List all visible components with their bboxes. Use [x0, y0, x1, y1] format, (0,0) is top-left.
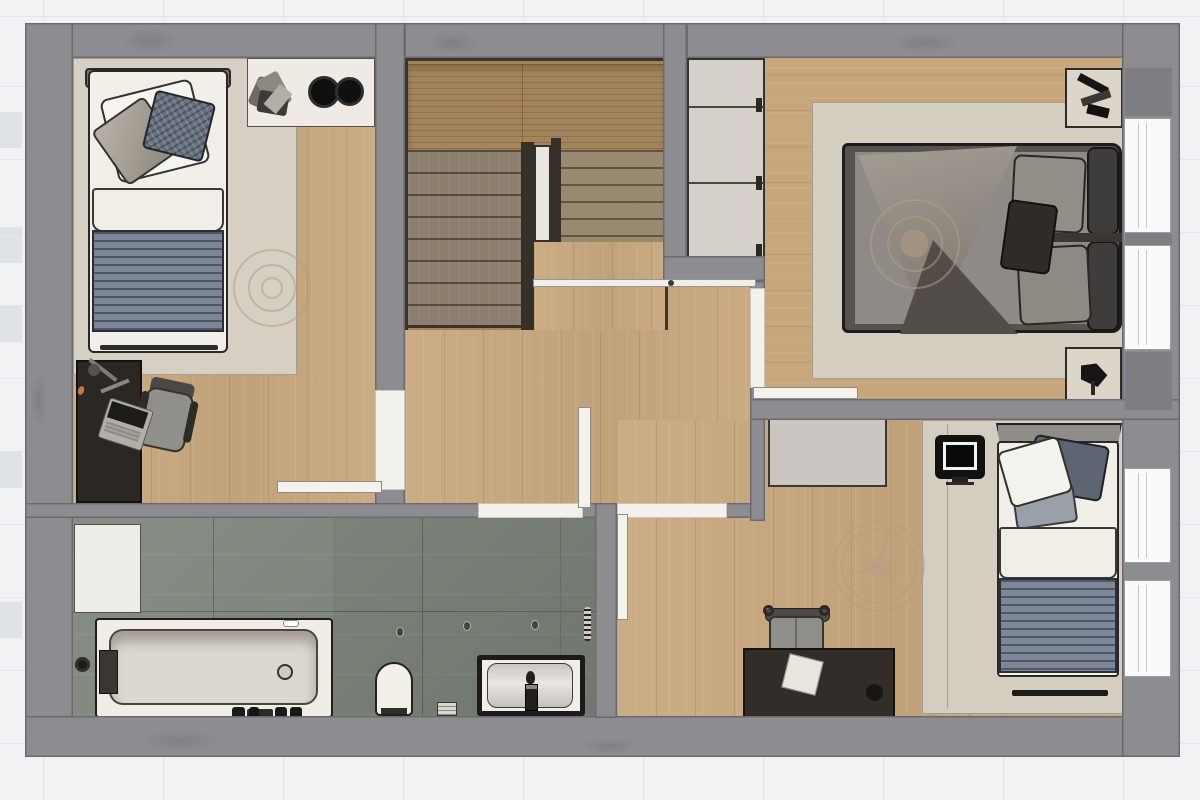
window [1124, 580, 1171, 677]
tub-knob [75, 657, 90, 672]
wall-stair-wardrobe [663, 23, 687, 258]
dresser [768, 418, 887, 487]
wall-pier [1125, 233, 1172, 245]
stair-left-flight [408, 150, 522, 327]
stair-divider-left-rail [521, 142, 534, 330]
door-leaf-master [753, 387, 858, 399]
wall-top [25, 23, 1180, 58]
wardrobe [687, 58, 765, 258]
doorway-bedroom2 [617, 503, 727, 518]
wall-under-wardrobe [663, 256, 765, 281]
black-cup [866, 684, 883, 701]
wall-master-bedroom2 [750, 399, 1180, 420]
stair-bottom-edge [408, 325, 522, 328]
stair-right-flight [561, 150, 665, 243]
floor-plan-canvas [0, 0, 1200, 800]
master-headboard-cushion [1087, 241, 1119, 331]
grid-shaded-cell [0, 112, 22, 148]
tv [935, 435, 985, 479]
desk [743, 648, 895, 718]
master-bed-split-shadow [1048, 233, 1122, 242]
vanity [477, 655, 585, 716]
waste-bin [437, 702, 457, 716]
wardrobe-handle [756, 244, 762, 256]
doorway-bathroom [478, 503, 583, 518]
doorway-master [750, 288, 765, 388]
ceiling-light-ring [261, 277, 283, 299]
stair-divider-right-rail [551, 138, 561, 245]
grid-shaded-cell [0, 602, 22, 638]
wardrobe-handle [756, 176, 762, 190]
tv-base [946, 482, 974, 485]
armrest-hook [763, 605, 774, 616]
stair-landing-seam [522, 64, 523, 150]
window [1124, 245, 1171, 350]
floor-spot [532, 621, 538, 629]
nightstand [1065, 68, 1123, 128]
bathroom-cabinet [74, 524, 141, 613]
plant [246, 72, 298, 126]
door-leaf-bedroom2 [617, 514, 628, 620]
doorway-bedroom1 [375, 390, 405, 490]
staircase [405, 58, 668, 330]
master-accent-pillow [999, 199, 1058, 275]
stair-guard-rail [533, 279, 756, 287]
faucet-drop [526, 671, 535, 684]
speaker [335, 77, 364, 106]
wall-bottom [25, 716, 1180, 757]
grid-shaded-cell [0, 452, 22, 488]
ceiling-light-center [901, 230, 928, 257]
wall-pier [1125, 352, 1172, 410]
grid-shaded-cell [0, 227, 22, 263]
wall-left [25, 23, 73, 757]
toilet [375, 662, 413, 716]
tub-drain [277, 664, 293, 680]
floor-spot [397, 628, 403, 636]
grid-shaded-cell [0, 306, 22, 342]
wall-bath-bedroom2 [595, 503, 617, 718]
faucet [525, 684, 538, 711]
bed2-striped-blanket [999, 578, 1117, 673]
bed2-sheet-fold [999, 527, 1117, 579]
master-headboard-cushion [1087, 147, 1119, 235]
tub-side-panel [99, 650, 118, 694]
bed1-sheet-fold [92, 188, 224, 232]
armrest-hook [819, 605, 830, 616]
bed1-footboard-line [100, 345, 218, 350]
wardrobe-handle [756, 98, 762, 112]
tub-overflow [283, 620, 299, 627]
door-leaf-bathroom [578, 407, 591, 508]
window [1124, 468, 1171, 563]
window [1124, 118, 1171, 233]
bathtub [95, 618, 333, 718]
dashed-wall-strip [584, 607, 591, 641]
door-leaf-bedroom1 [277, 481, 382, 493]
stair-divider-slot [534, 145, 551, 242]
rail-end-post [668, 280, 674, 286]
wall-pier [1125, 68, 1172, 116]
wall-seam [687, 25, 688, 56]
bed1-striped-blanket [92, 230, 224, 332]
bed2-footboard-line [1012, 690, 1108, 696]
nightstand [1065, 347, 1122, 403]
wall-seam [405, 25, 406, 56]
floor-spot [464, 622, 470, 630]
stair-landing [408, 64, 665, 150]
